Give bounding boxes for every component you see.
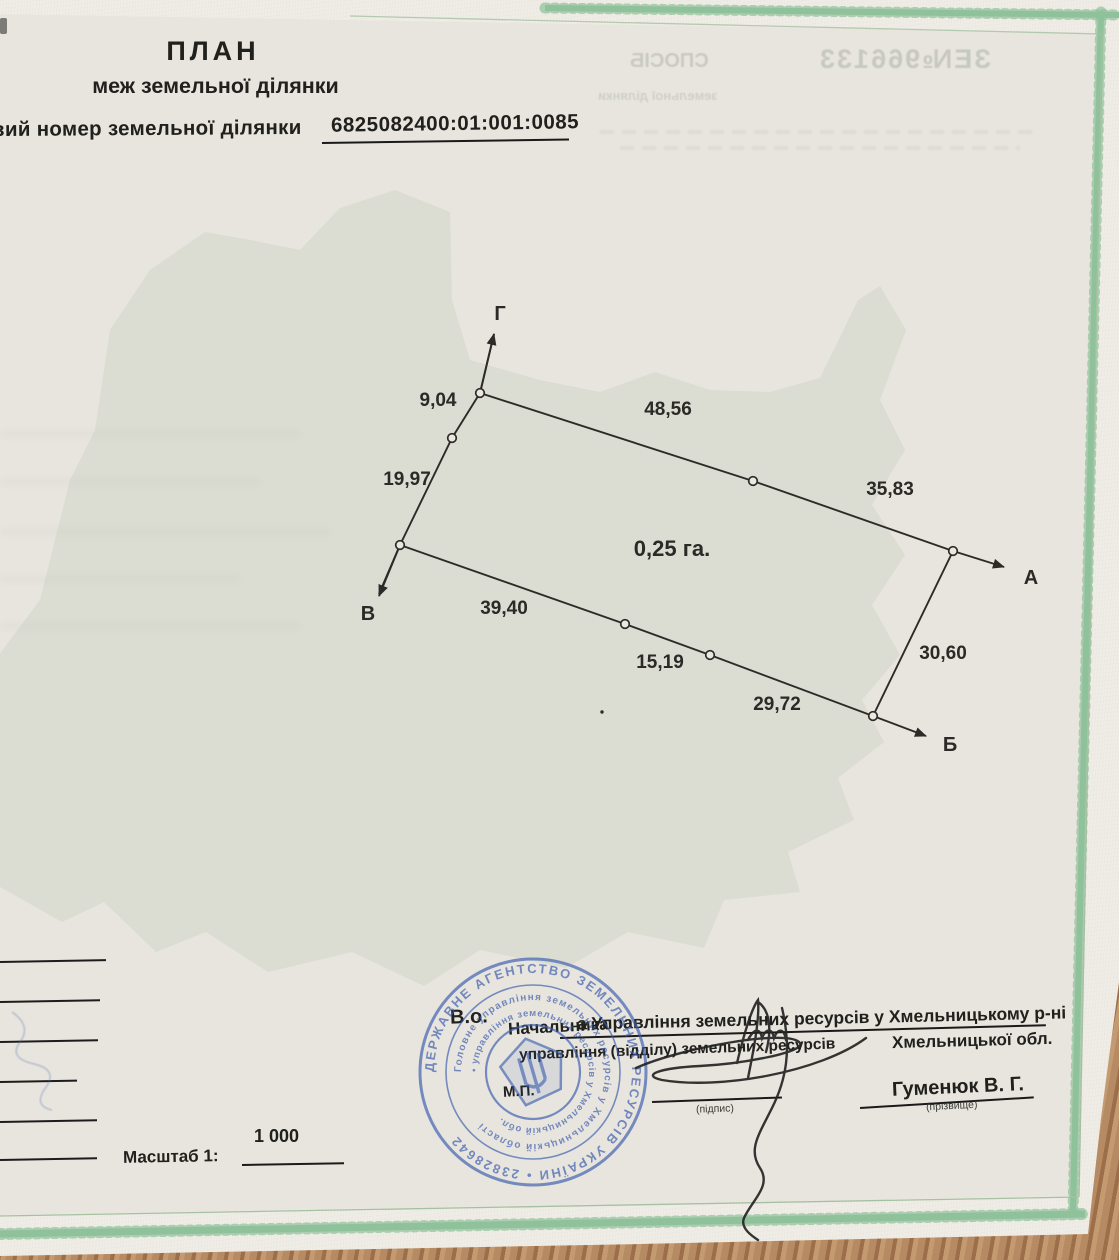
scale-label: Масштаб 1: (123, 1146, 219, 1168)
bleedthrough-blob (0, 622, 300, 630)
bleedthrough-row (600, 130, 1040, 134)
page-title: ПЛАН (63, 36, 363, 67)
bleedthrough-blob (0, 528, 330, 536)
acting-prefix: В.о. (450, 1005, 489, 1029)
document-inner-area (0, 0, 1119, 1260)
bleedthrough-blob (0, 430, 300, 438)
bleedthrough-text: земельної ділянки (598, 88, 718, 103)
bleedthrough-row (620, 146, 1020, 150)
seal-place-label: М.П. (503, 1082, 535, 1101)
cadastral-number-value: 6825082400:01:001:0085 (331, 110, 579, 137)
bleedthrough-serial: ЗЕ№966133 (818, 44, 991, 75)
bleedthrough-blob (0, 478, 260, 486)
bleedthrough-text: СПОСІБ (630, 50, 709, 73)
region-typed: Хмельницької обл. (892, 1029, 1053, 1053)
scanned-land-plan-photo: СПОСІБ ЗЕ№966133 земельної ділянки ПЛАН … (0, 0, 1119, 1260)
scale-value: 1 000 (254, 1126, 299, 1147)
cadastral-number-label: вий номер земельної ділянки (0, 116, 302, 142)
scan-artifact-mark (0, 18, 7, 34)
page-subtitle: меж земельної ділянки (58, 74, 373, 99)
bleedthrough-blob (0, 575, 240, 583)
signature-caption: (підпис) (696, 1102, 734, 1115)
